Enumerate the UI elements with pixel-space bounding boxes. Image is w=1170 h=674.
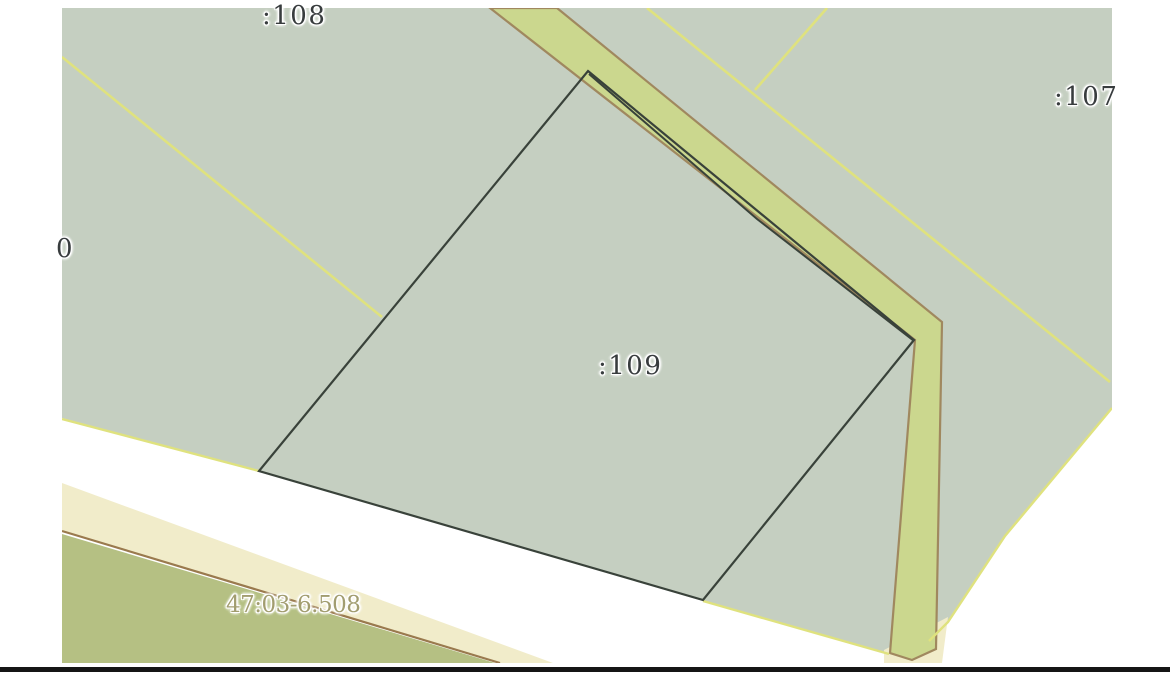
parcel-label-107: :107 <box>1054 82 1118 112</box>
parcel-label-partial: 0 <box>56 234 74 264</box>
map-canvas[interactable] <box>0 0 1170 674</box>
parcel-label-109: :109 <box>598 351 662 381</box>
bottom-divider-bar <box>0 667 1170 672</box>
zone-label: 47:03-6.508 <box>226 592 360 618</box>
cadastral-map-screen: :108 :107 :109 0 47:03-6.508 <box>0 0 1170 674</box>
parcel-label-108: :108 <box>262 1 326 31</box>
map-svg[interactable] <box>0 0 1170 674</box>
